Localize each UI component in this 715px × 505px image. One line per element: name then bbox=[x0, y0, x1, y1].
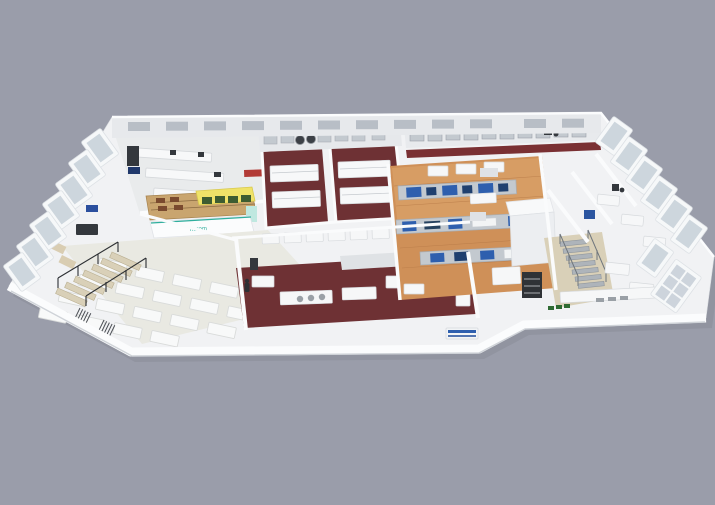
instrument bbox=[170, 150, 176, 155]
shelf-item bbox=[170, 197, 179, 202]
robot-instrument bbox=[620, 188, 625, 193]
white-table bbox=[492, 267, 521, 285]
cooktop bbox=[297, 296, 303, 302]
render-stage: hurom bbox=[0, 0, 715, 505]
equipment bbox=[250, 258, 258, 270]
facility-render: hurom bbox=[0, 0, 715, 505]
server-rack bbox=[127, 146, 139, 166]
island-bench bbox=[270, 164, 319, 182]
bench bbox=[621, 214, 644, 226]
shelf-item bbox=[158, 206, 167, 211]
robot-instrument bbox=[612, 184, 619, 191]
instrument bbox=[198, 152, 204, 157]
bench bbox=[597, 194, 620, 206]
gray-bench bbox=[480, 168, 498, 177]
green-box bbox=[228, 196, 238, 203]
instrument bbox=[214, 172, 221, 177]
island-bench bbox=[272, 190, 321, 208]
green-box bbox=[215, 196, 225, 203]
copier bbox=[76, 224, 98, 235]
entrance-bench bbox=[446, 328, 478, 339]
green-box bbox=[202, 197, 212, 204]
counter bbox=[342, 287, 376, 300]
counter bbox=[252, 276, 274, 287]
blue-instrument bbox=[584, 210, 595, 219]
cooktop bbox=[319, 294, 325, 300]
bench bbox=[404, 284, 424, 294]
shelf-item bbox=[156, 198, 165, 203]
kettle bbox=[296, 136, 305, 145]
maroon-floor-room1 bbox=[262, 148, 328, 228]
bench bbox=[470, 193, 496, 204]
green-box bbox=[241, 195, 251, 202]
gray-bench bbox=[470, 212, 486, 221]
bench bbox=[605, 262, 630, 275]
table bbox=[428, 166, 448, 176]
table bbox=[456, 164, 476, 174]
navy-sign bbox=[128, 167, 140, 174]
person bbox=[245, 279, 250, 292]
shelf-item bbox=[174, 205, 183, 210]
cooktop bbox=[308, 295, 314, 301]
navy-sign bbox=[86, 205, 98, 212]
